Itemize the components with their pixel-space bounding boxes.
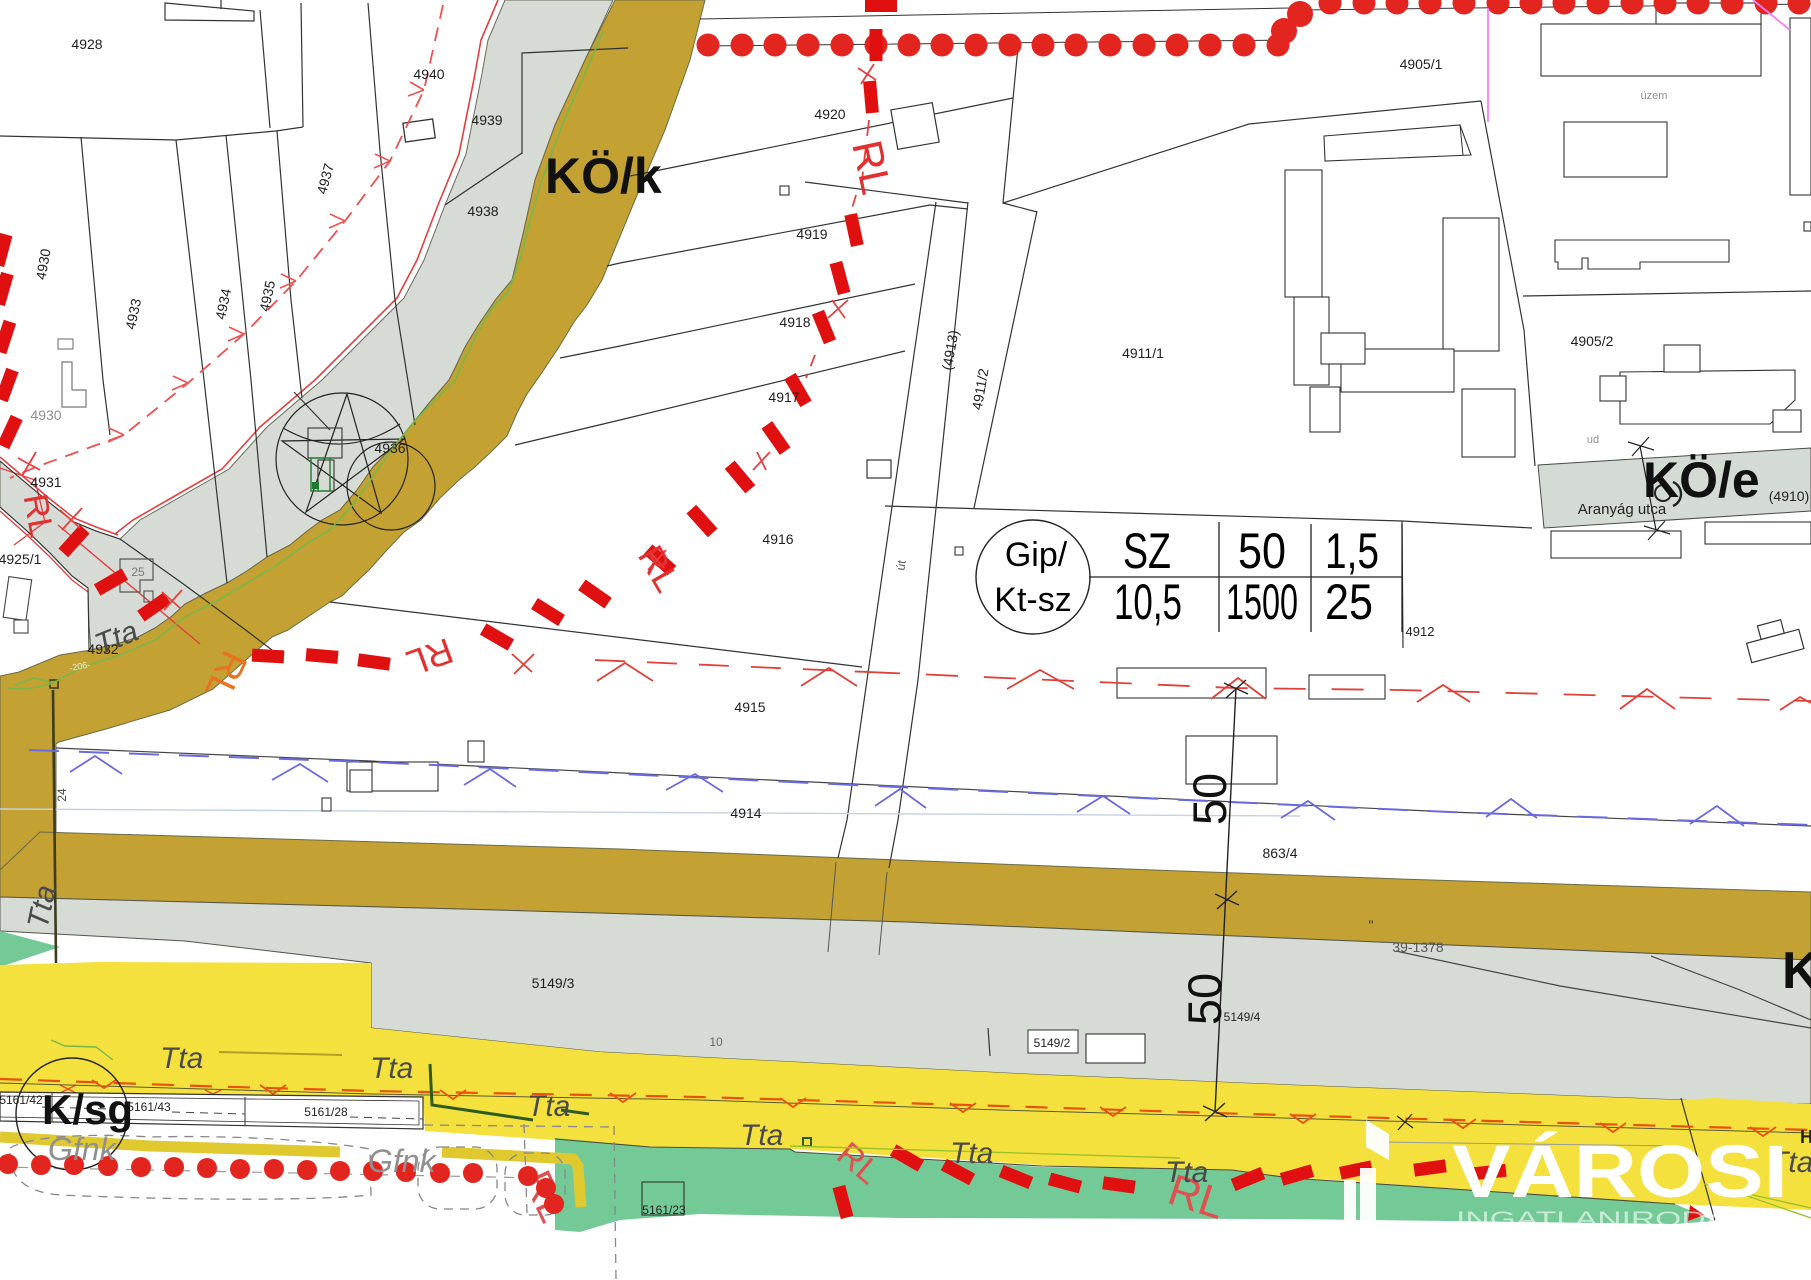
svg-text:Kt-sz: Kt-sz	[994, 581, 1071, 619]
svg-text:üzem: üzem	[1641, 90, 1668, 102]
svg-text:Tta: Tta	[370, 1052, 413, 1085]
svg-text:5149/3: 5149/3	[532, 975, 575, 991]
svg-text:ud: ud	[1587, 434, 1599, 446]
svg-text:4930: 4930	[30, 407, 61, 423]
svg-text:5161/28: 5161/28	[304, 1105, 348, 1119]
svg-text:KÖ/e: KÖ/e	[1643, 452, 1760, 508]
svg-text:5149/2: 5149/2	[1034, 1036, 1071, 1050]
svg-text:(4910): (4910)	[1769, 488, 1809, 504]
svg-text:VÁROSI: VÁROSI	[1452, 1130, 1788, 1213]
svg-text:5149/4: 5149/4	[1224, 1010, 1261, 1024]
svg-text:K/sg: K/sg	[42, 1086, 133, 1133]
svg-text:4915: 4915	[734, 699, 765, 715]
svg-text:KÖ/k: KÖ/k	[545, 148, 662, 204]
svg-text:Aranyág utca: Aranyág utca	[1578, 501, 1667, 518]
svg-text:Tta: Tta	[1165, 1156, 1208, 1189]
svg-text:Gfnk: Gfnk	[368, 1143, 438, 1179]
svg-text:Tta: Tta	[527, 1090, 570, 1123]
svg-text:4939: 4939	[471, 112, 502, 128]
svg-text:50: 50	[1183, 773, 1236, 825]
svg-text:Gfnk: Gfnk	[48, 1131, 118, 1167]
svg-text:5161/43: 5161/43	[127, 1100, 171, 1114]
svg-text:4911/1: 4911/1	[1122, 345, 1164, 361]
svg-text:Tta: Tta	[160, 1042, 203, 1075]
svg-text:24: 24	[55, 788, 69, 802]
svg-text:4938: 4938	[467, 203, 498, 219]
svg-text:4919: 4919	[796, 226, 827, 242]
svg-text:4918: 4918	[779, 314, 810, 330]
svg-text:863/4: 863/4	[1262, 845, 1297, 861]
svg-text:4917: 4917	[768, 389, 799, 405]
svg-text:1500: 1500	[1226, 574, 1298, 630]
svg-text:4936: 4936	[374, 440, 405, 456]
svg-text:5161/42: 5161/42	[0, 1093, 43, 1107]
svg-text:5161/23: 5161/23	[642, 1203, 686, 1217]
svg-text:SZ: SZ	[1123, 523, 1171, 579]
svg-text:25: 25	[1325, 574, 1373, 630]
svg-text:INGATLANIRODA: INGATLANIRODA	[1456, 1208, 1728, 1231]
svg-text:1,5: 1,5	[1325, 523, 1379, 579]
svg-text:": "	[1369, 917, 1374, 933]
svg-text:H: H	[1800, 1127, 1811, 1147]
svg-text:Gip/: Gip/	[1005, 536, 1068, 574]
svg-text:Tta: Tta	[740, 1119, 783, 1152]
svg-text:10,5: 10,5	[1114, 574, 1182, 630]
svg-text:4905/2: 4905/2	[1571, 333, 1614, 349]
svg-text:4925/1: 4925/1	[0, 551, 42, 567]
svg-text:39-1378: 39-1378	[1392, 939, 1444, 955]
svg-text:4916: 4916	[762, 531, 793, 547]
svg-text:4914: 4914	[730, 805, 761, 821]
svg-text:4912: 4912	[1406, 624, 1435, 639]
svg-text:4940: 4940	[413, 66, 444, 82]
svg-text:50: 50	[1238, 523, 1286, 579]
svg-text:4905/1: 4905/1	[1400, 56, 1443, 72]
svg-text:KÖ: KÖ	[1782, 942, 1811, 1000]
svg-text:4920: 4920	[814, 106, 845, 122]
svg-text:Tta: Tta	[950, 1137, 993, 1170]
svg-text:25: 25	[131, 565, 145, 579]
svg-text:4931: 4931	[30, 474, 61, 490]
svg-text:RL: RL	[16, 491, 61, 540]
svg-text:10: 10	[709, 1035, 723, 1049]
svg-text:4928: 4928	[71, 36, 102, 52]
